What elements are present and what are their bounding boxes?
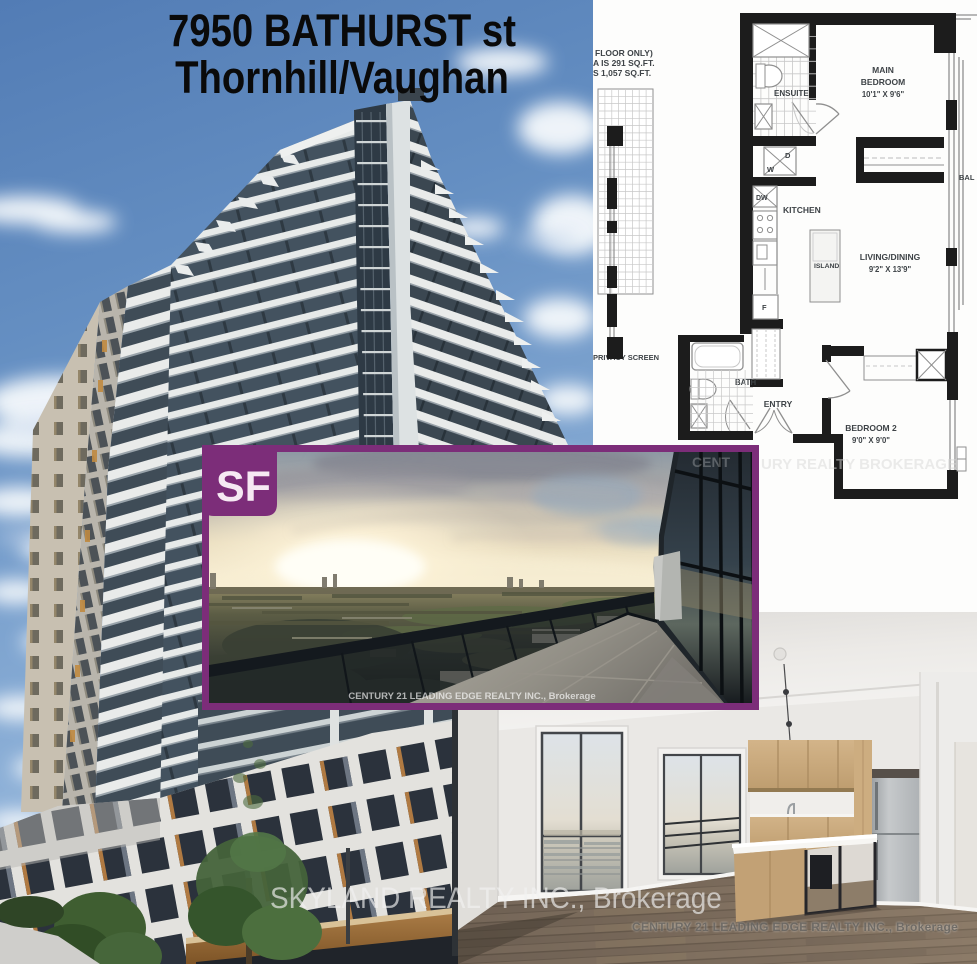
svg-text:KITCHEN: KITCHEN [783, 205, 821, 215]
svg-text:BATH: BATH [735, 378, 756, 387]
svg-text:ENTRY: ENTRY [764, 399, 793, 409]
svg-text:BEDROOM: BEDROOM [861, 77, 905, 87]
svg-text:10'1" X 9'6": 10'1" X 9'6" [862, 90, 905, 99]
svg-text:SF: SF [216, 463, 271, 511]
svg-text:URY REALTY BROKERAGE: URY REALTY BROKERAGE [761, 456, 957, 473]
svg-text:W: W [767, 165, 775, 174]
svg-text:D: D [785, 151, 791, 160]
svg-text:F: F [762, 303, 767, 312]
svg-text:MAIN: MAIN [872, 65, 894, 75]
svg-text:CENTURY 21 LEADING EDGE REALTY: CENTURY 21 LEADING EDGE REALTY INC., Bro… [348, 691, 595, 702]
svg-text:ISLAND: ISLAND [814, 263, 839, 270]
svg-text:LIVING/DINING: LIVING/DINING [860, 252, 921, 262]
svg-text:9'2" X 13'9": 9'2" X 13'9" [869, 265, 912, 274]
svg-text:BAL: BAL [959, 173, 975, 182]
svg-text:ENSUITE: ENSUITE [774, 89, 809, 98]
svg-text:9'0" X 9'0": 9'0" X 9'0" [852, 436, 890, 445]
svg-text:PRIVACY SCREEN: PRIVACY SCREEN [593, 353, 659, 362]
svg-text:BEDROOM 2: BEDROOM 2 [845, 423, 897, 433]
svg-text:DW: DW [756, 195, 768, 202]
